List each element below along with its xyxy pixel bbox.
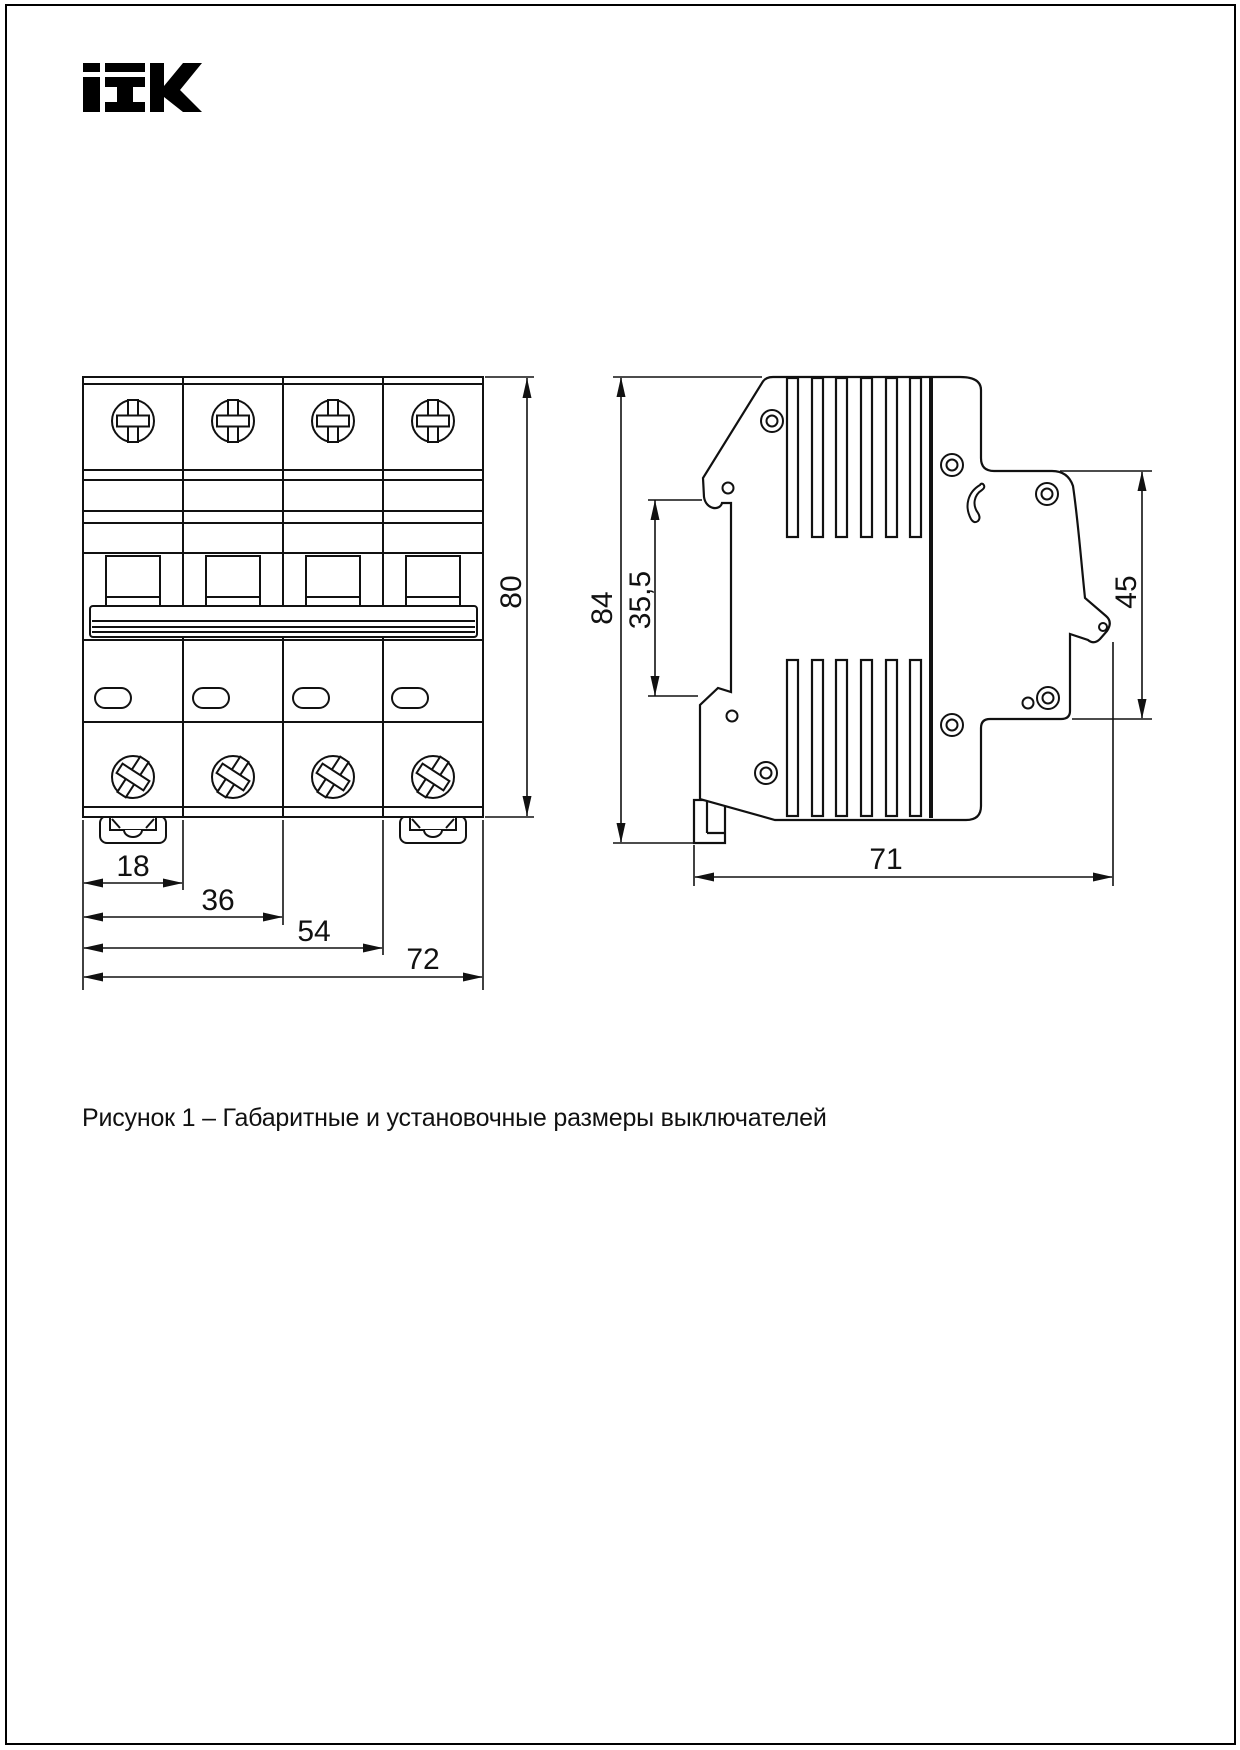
dim-label-84: 84 <box>586 591 619 624</box>
toggle-lever <box>306 556 360 608</box>
toggle-lever <box>406 556 460 608</box>
logo-k-stem <box>150 63 164 112</box>
technical-drawing: 18 36 54 72 80 <box>0 0 1240 1750</box>
dim-label-35-5: 35,5 <box>624 571 657 629</box>
dim-label-72: 72 <box>406 943 439 976</box>
logo-k-arms <box>164 63 202 112</box>
logo-e-mid <box>105 77 145 87</box>
screw-icon <box>112 400 154 442</box>
iek-logo <box>83 63 202 112</box>
side-view <box>694 377 1110 843</box>
dim-label-36: 36 <box>201 884 234 917</box>
dim-label-45: 45 <box>1110 575 1143 608</box>
din-clip-foot <box>694 800 725 843</box>
toggle-lever <box>206 556 260 608</box>
toggle-tie-bar <box>90 606 477 637</box>
logo-e-bottom <box>105 102 145 112</box>
dimension-width-54 <box>83 944 383 953</box>
din-clip-left <box>100 816 166 843</box>
front-view <box>83 377 483 843</box>
side-body <box>700 377 1110 820</box>
toggle-lever <box>106 556 160 608</box>
dim-label-54: 54 <box>297 915 330 948</box>
figure-caption: Рисунок 1 – Габаритные и установочные ра… <box>82 1104 827 1133</box>
logo-e-top <box>105 63 145 72</box>
dim-label-80: 80 <box>495 575 528 608</box>
logo-i-dot <box>83 63 100 72</box>
screw-icon <box>212 400 254 442</box>
din-clip-right <box>400 816 466 843</box>
logo-e-center <box>117 87 133 102</box>
logo-i-body <box>83 77 100 112</box>
screw-icon <box>412 400 454 442</box>
dim-label-71: 71 <box>869 843 902 876</box>
screw-icon <box>312 400 354 442</box>
dim-label-18: 18 <box>116 850 149 883</box>
datasheet-page: 18 36 54 72 80 <box>0 0 1240 1750</box>
dimension-width-36 <box>83 913 283 922</box>
